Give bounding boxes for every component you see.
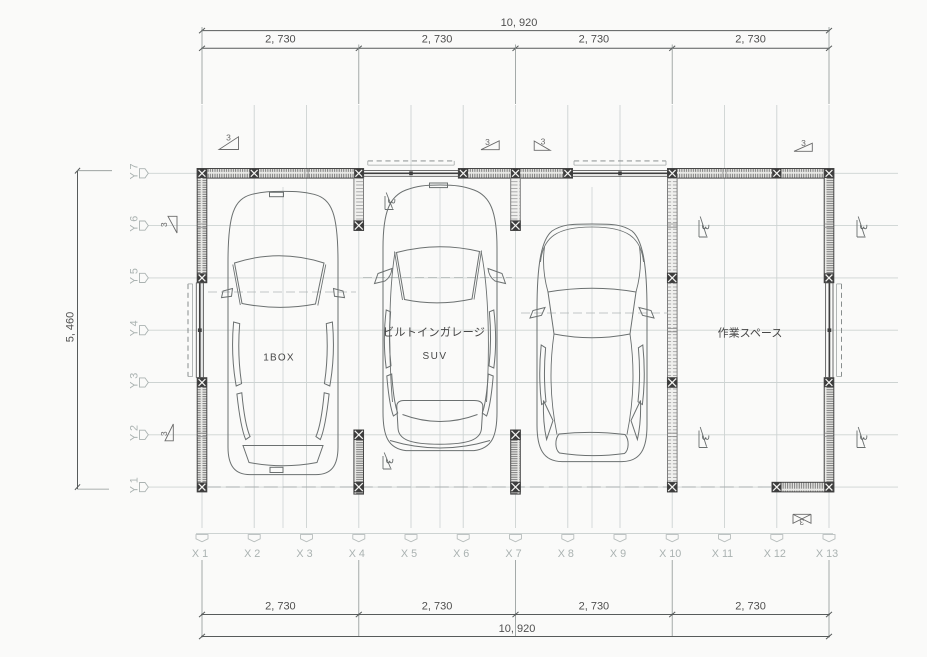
svg-text:Y 4: Y 4 — [129, 320, 141, 336]
svg-text:3: 3 — [226, 132, 231, 142]
svg-text:X 2: X 2 — [244, 548, 260, 560]
svg-text:3: 3 — [159, 431, 169, 436]
svg-text:2, 730: 2, 730 — [579, 34, 610, 46]
svg-text:10, 920: 10, 920 — [499, 623, 536, 635]
svg-text:3: 3 — [801, 138, 806, 148]
svg-text:2, 730: 2, 730 — [265, 34, 296, 46]
svg-text:X 5: X 5 — [401, 548, 417, 560]
svg-text:2, 730: 2, 730 — [579, 601, 610, 613]
svg-text:X 7: X 7 — [505, 548, 521, 560]
svg-text:2, 730: 2, 730 — [735, 601, 766, 613]
svg-text:1BOX: 1BOX — [263, 353, 294, 364]
svg-text:2, 730: 2, 730 — [265, 601, 296, 613]
svg-text:X 12: X 12 — [764, 548, 786, 560]
svg-text:X 13: X 13 — [816, 548, 838, 560]
svg-text:2, 730: 2, 730 — [735, 34, 766, 46]
svg-text:X 4: X 4 — [349, 548, 365, 560]
svg-text:Y 7: Y 7 — [129, 163, 141, 179]
svg-text:作業スペース: 作業スペース — [718, 327, 783, 340]
svg-text:3: 3 — [485, 137, 490, 147]
svg-text:10, 920: 10, 920 — [501, 17, 538, 29]
svg-text:Y 1: Y 1 — [129, 477, 141, 493]
svg-text:ビルトインガレージ: ビルトインガレージ — [383, 326, 485, 339]
svg-text:Y 5: Y 5 — [129, 268, 141, 284]
svg-text:Y 2: Y 2 — [129, 425, 141, 441]
svg-text:Y 6: Y 6 — [129, 216, 141, 232]
svg-text:X 10: X 10 — [659, 548, 681, 560]
svg-text:X 9: X 9 — [610, 548, 626, 560]
svg-text:5, 460: 5, 460 — [65, 312, 77, 343]
svg-text:3: 3 — [541, 137, 546, 147]
svg-text:X 8: X 8 — [558, 548, 574, 560]
svg-text:X 11: X 11 — [712, 548, 733, 560]
svg-text:2, 730: 2, 730 — [422, 34, 453, 46]
svg-text:X 6: X 6 — [453, 548, 469, 560]
svg-text:3: 3 — [799, 517, 804, 527]
svg-text:SUV: SUV — [422, 351, 447, 362]
svg-text:X 3: X 3 — [296, 548, 312, 560]
svg-text:Y 3: Y 3 — [129, 373, 141, 389]
svg-text:3: 3 — [159, 222, 169, 227]
svg-text:X 1: X 1 — [192, 548, 208, 560]
svg-text:2, 730: 2, 730 — [422, 601, 453, 613]
